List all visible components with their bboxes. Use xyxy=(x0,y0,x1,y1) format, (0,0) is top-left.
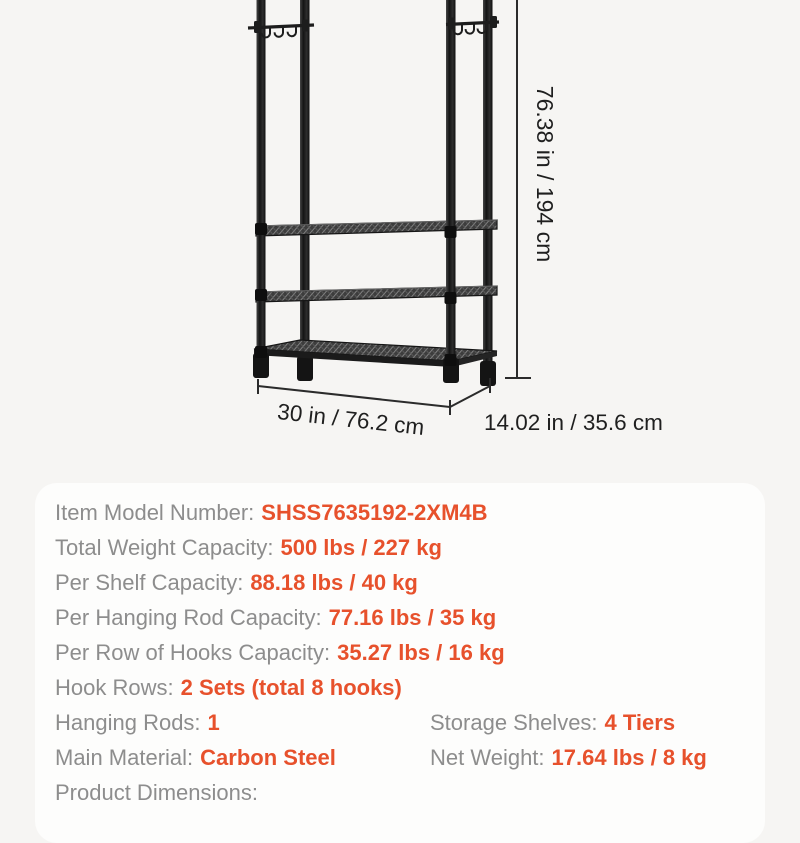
width-dimension-label: 30 in / 76.2 cm xyxy=(276,399,425,440)
spec-pair-storage-shelves: Storage Shelves:4 Tiers xyxy=(430,705,675,740)
height-dimension-label: 76.38 in / 194 cm xyxy=(532,86,558,262)
page: { "page": { "background_color": "#F6F5F3… xyxy=(0,0,800,800)
rack-pole-front-left xyxy=(253,0,269,378)
wire-shelf-3 xyxy=(254,340,497,367)
spec-label: Per Hanging Rod Capacity: xyxy=(55,605,322,630)
spec-label: Main Material: xyxy=(55,745,193,770)
spec-row-total-weight-capacity: Total Weight Capacity:500 lbs / 227 kg xyxy=(55,530,745,565)
spec-value: 77.16 lbs / 35 kg xyxy=(329,605,497,630)
spec-label: Per Row of Hooks Capacity: xyxy=(55,640,330,665)
spec-row-hook-rows: Hook Rows:2 Sets (total 8 hooks) xyxy=(55,670,745,705)
spec-card: Item Model Number:SHSS7635192-2XM4B Tota… xyxy=(35,483,765,843)
depth-dimension-line xyxy=(450,386,490,407)
spec-row-material-and-weight: Main Material:Carbon Steel Net Weight:17… xyxy=(55,740,745,775)
spec-row-per-shelf-capacity: Per Shelf Capacity:88.18 lbs / 40 kg xyxy=(55,565,745,600)
spec-value: 2 Sets (total 8 hooks) xyxy=(181,675,402,700)
product-figure: 76.38 in / 194 cm 30 in / 76.2 cm 14.02 … xyxy=(0,0,800,470)
spec-label: Hook Rows: xyxy=(55,675,174,700)
spec-row-hanging-rod-capacity: Per Hanging Rod Capacity:77.16 lbs / 35 … xyxy=(55,600,745,635)
spec-value: 17.64 lbs / 8 kg xyxy=(552,745,707,770)
spec-row-rods-and-shelves: Hanging Rods:1 Storage Shelves:4 Tiers xyxy=(55,705,745,740)
spec-row-model-number: Item Model Number:SHSS7635192-2XM4B xyxy=(55,495,745,530)
spec-pair-net-weight: Net Weight:17.64 lbs / 8 kg xyxy=(430,740,707,775)
rack-pole-front-right xyxy=(443,0,459,383)
rack-pole-back-left xyxy=(297,0,313,381)
spec-value: 1 xyxy=(208,710,220,735)
spec-value: 35.27 lbs / 16 kg xyxy=(337,640,505,665)
depth-dimension-label: 14.02 in / 35.6 cm xyxy=(484,410,663,435)
spec-label: Item Model Number: xyxy=(55,500,254,525)
spec-value: 88.18 lbs / 40 kg xyxy=(250,570,418,595)
spec-value: 500 lbs / 227 kg xyxy=(280,535,441,560)
spec-label: Hanging Rods: xyxy=(55,710,201,735)
spec-label: Storage Shelves: xyxy=(430,710,598,735)
spec-label: Total Weight Capacity: xyxy=(55,535,273,560)
spec-row-hooks-capacity: Per Row of Hooks Capacity:35.27 lbs / 16… xyxy=(55,635,745,670)
spec-row-product-dimensions: Product Dimensions: xyxy=(55,775,745,810)
rack-pole-back-right xyxy=(480,0,496,386)
spec-label: Product Dimensions: xyxy=(55,780,258,805)
spec-value: Carbon Steel xyxy=(200,745,336,770)
spec-label: Per Shelf Capacity: xyxy=(55,570,243,595)
spec-pair-hanging-rods: Hanging Rods:1 xyxy=(55,705,220,740)
spec-value: 4 Tiers xyxy=(605,710,676,735)
spec-pair-main-material: Main Material:Carbon Steel xyxy=(55,740,336,775)
spec-value: SHSS7635192-2XM4B xyxy=(261,500,487,525)
spec-label: Net Weight: xyxy=(430,745,545,770)
product-illustration: 76.38 in / 194 cm 30 in / 76.2 cm 14.02 … xyxy=(0,0,800,470)
wire-shelf-2 xyxy=(256,286,497,302)
wire-shelf-1 xyxy=(256,220,497,236)
